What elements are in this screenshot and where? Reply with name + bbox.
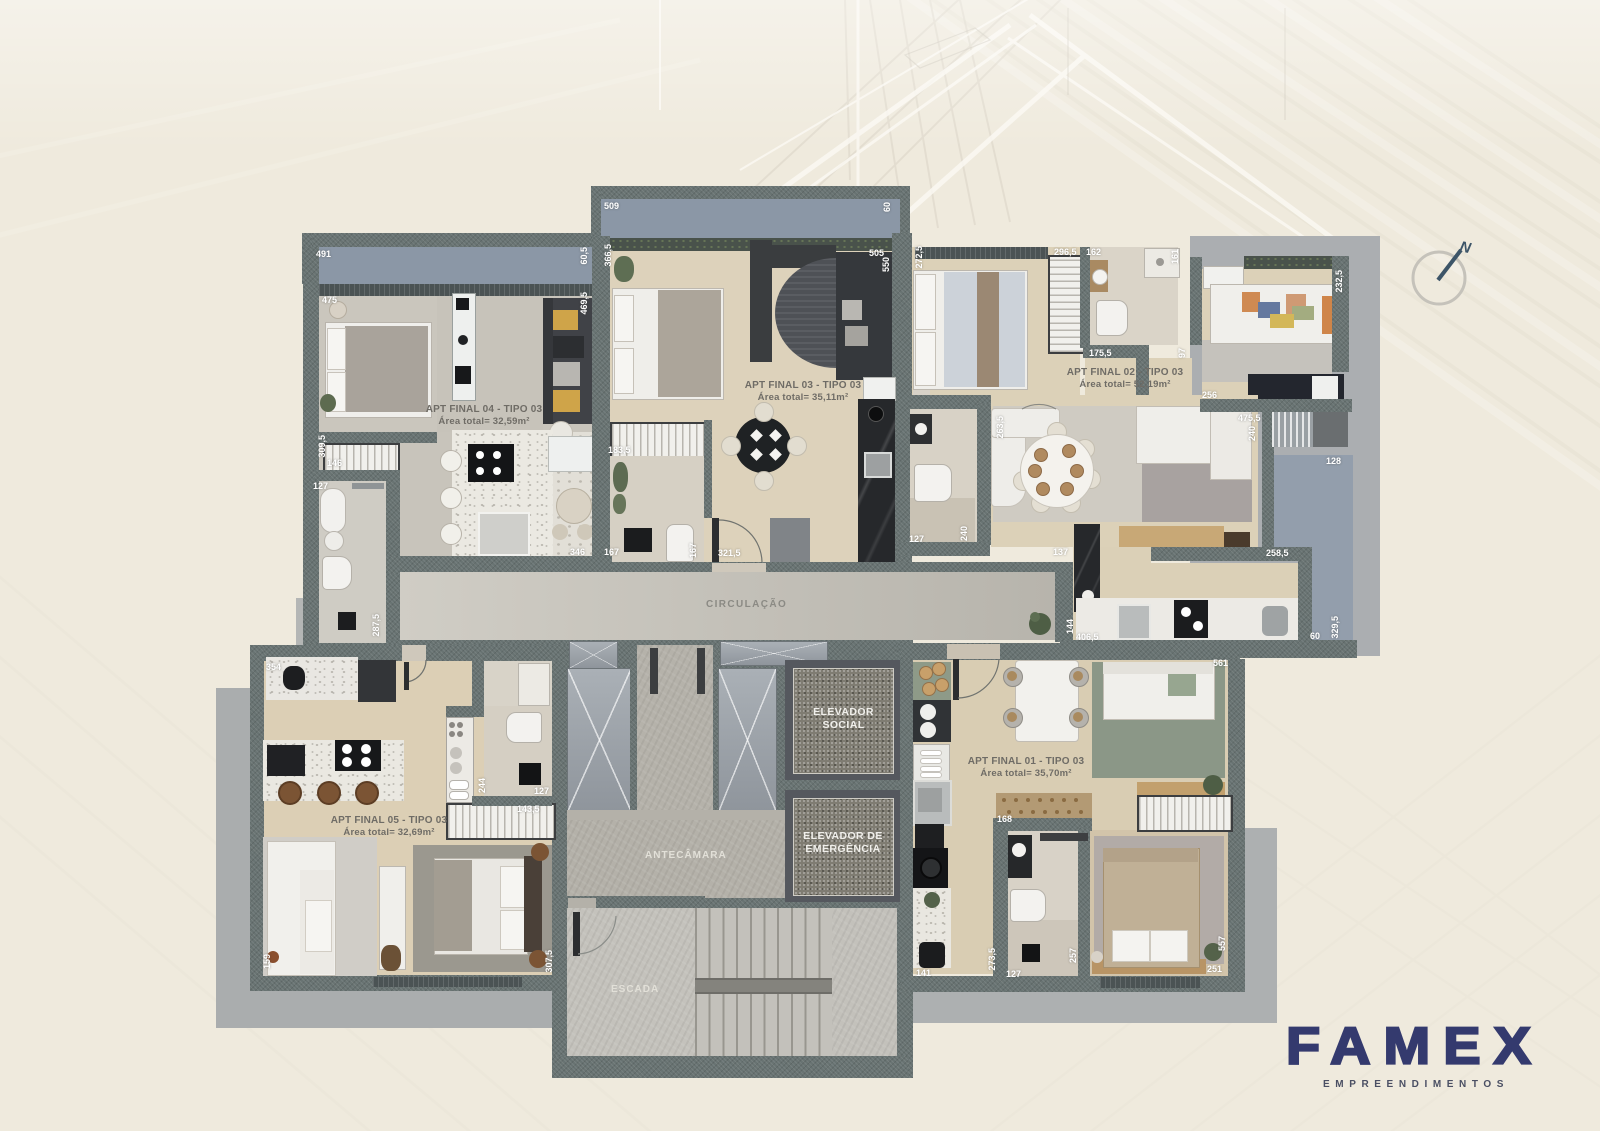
svg-text:N: N <box>1458 238 1473 257</box>
